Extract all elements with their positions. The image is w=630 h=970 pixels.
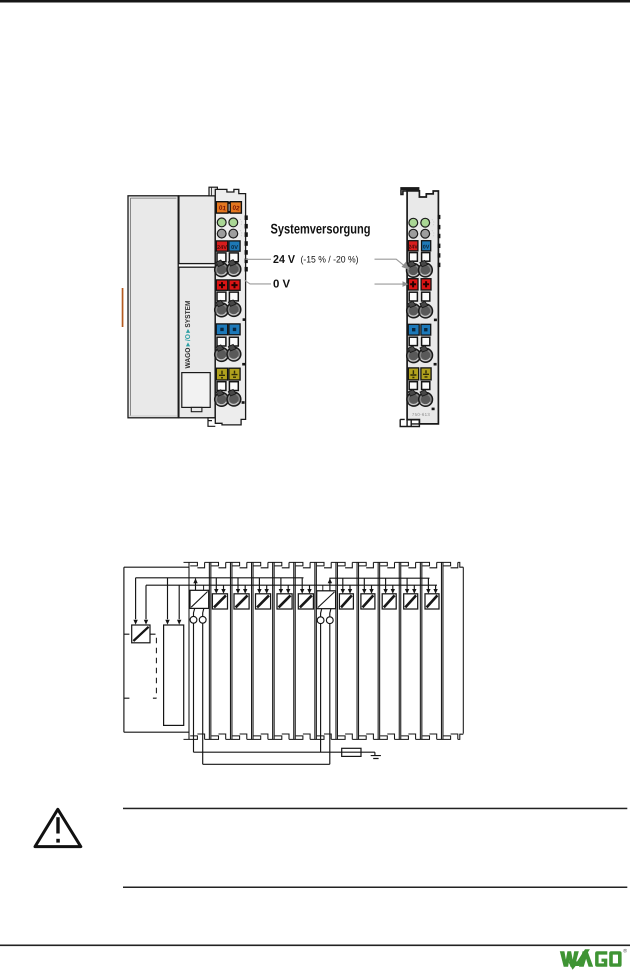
svg-text:WAGO►/O►SYSTEM: WAGO►/O►SYSTEM [184,300,192,368]
svg-text:24V: 24V [217,245,227,251]
svg-text:(-15 % / -20 %): (-15 % / -20 %) [301,253,359,264]
svg-text:24 V: 24 V [273,254,295,266]
svg-text:0V: 0V [231,245,238,251]
svg-text:®: ® [623,949,627,955]
svg-text:Systemversorgung: Systemversorgung [271,220,371,236]
svg-text:24V: 24V [408,245,418,251]
svg-text:01: 01 [218,205,226,213]
svg-text:0V: 0V [423,245,430,251]
svg-text:02: 02 [232,205,240,213]
svg-text:750-613: 750-613 [412,412,430,417]
svg-text:0 V: 0 V [273,279,290,291]
